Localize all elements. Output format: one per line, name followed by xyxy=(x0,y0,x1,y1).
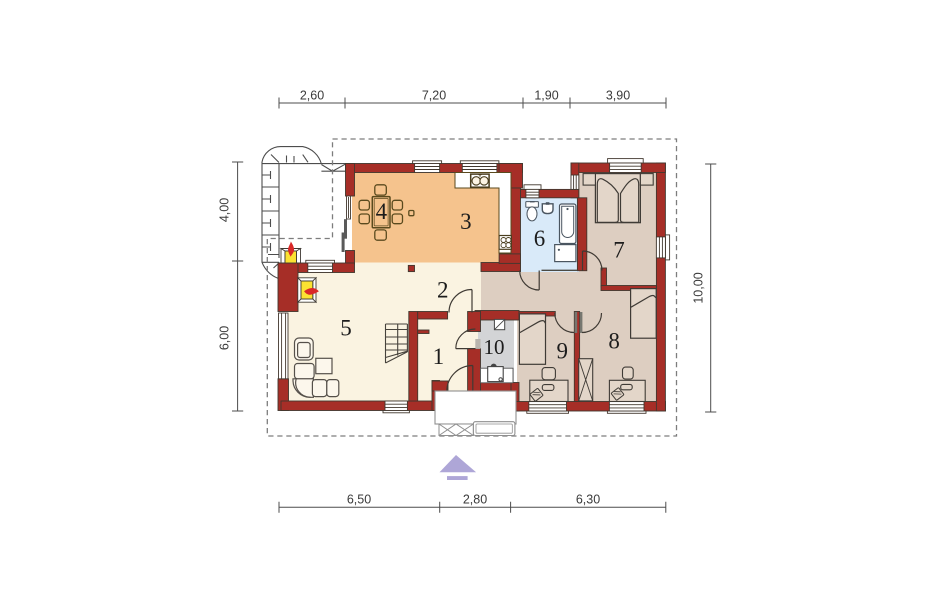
svg-text:2,60: 2,60 xyxy=(300,89,324,103)
svg-text:7,20: 7,20 xyxy=(422,89,446,103)
svg-text:2,80: 2,80 xyxy=(463,493,487,507)
svg-text:3,90: 3,90 xyxy=(606,89,630,103)
svg-text:2: 2 xyxy=(437,278,449,303)
svg-text:8: 8 xyxy=(608,329,620,354)
svg-text:10,00: 10,00 xyxy=(692,272,706,303)
svg-text:5: 5 xyxy=(340,316,352,341)
svg-text:6,30: 6,30 xyxy=(576,493,600,507)
svg-text:1,90: 1,90 xyxy=(534,89,558,103)
svg-text:6: 6 xyxy=(534,226,546,251)
svg-text:9: 9 xyxy=(557,339,569,364)
svg-text:1: 1 xyxy=(433,344,445,369)
svg-text:10: 10 xyxy=(484,335,505,359)
svg-text:3: 3 xyxy=(460,209,472,234)
svg-text:6,00: 6,00 xyxy=(218,326,232,350)
svg-text:4,00: 4,00 xyxy=(218,198,232,222)
svg-text:6,50: 6,50 xyxy=(347,493,371,507)
svg-text:4: 4 xyxy=(376,199,388,224)
svg-text:7: 7 xyxy=(613,238,625,263)
